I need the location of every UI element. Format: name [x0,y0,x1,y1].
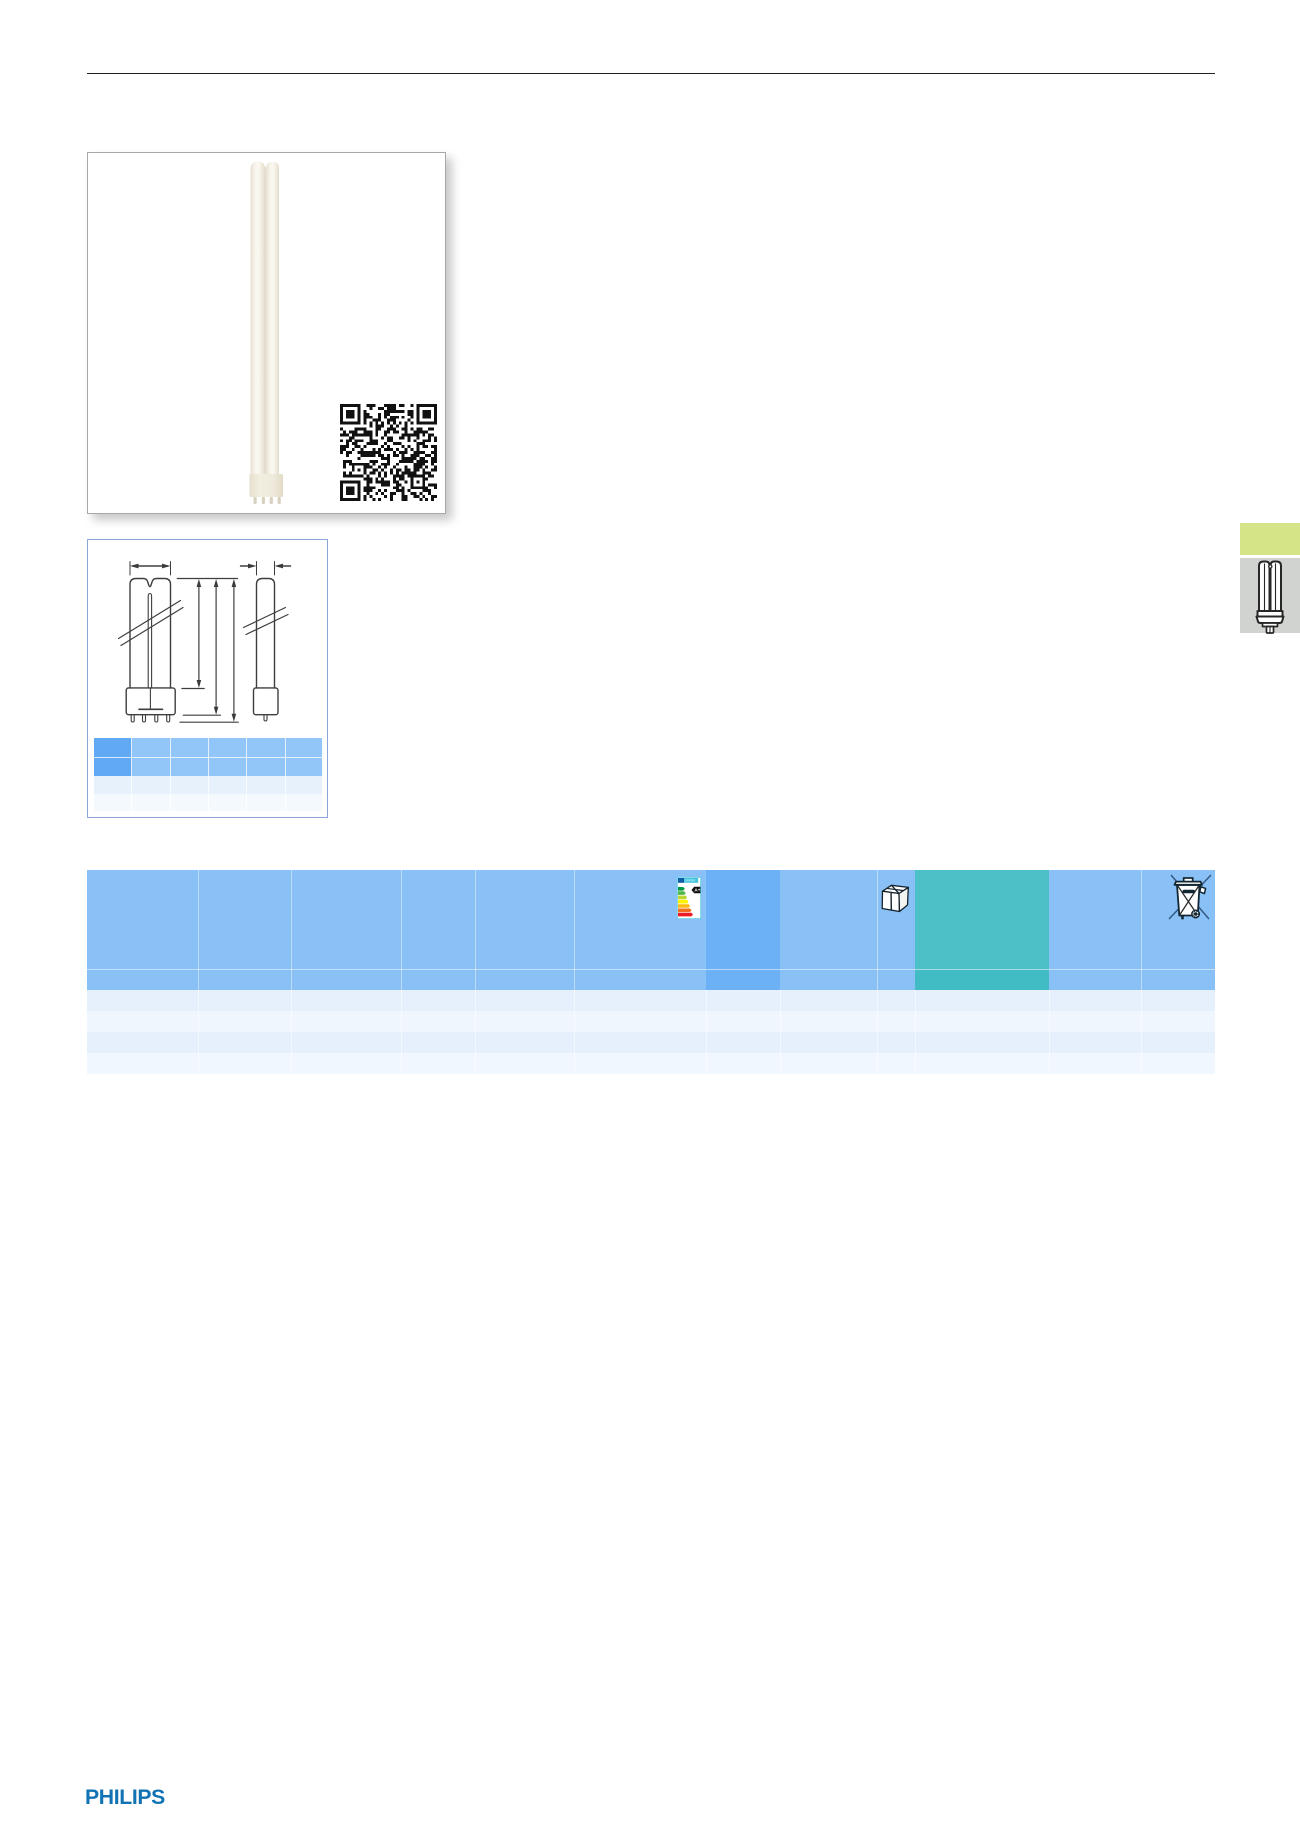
svg-text:A+: A+ [694,887,700,892]
